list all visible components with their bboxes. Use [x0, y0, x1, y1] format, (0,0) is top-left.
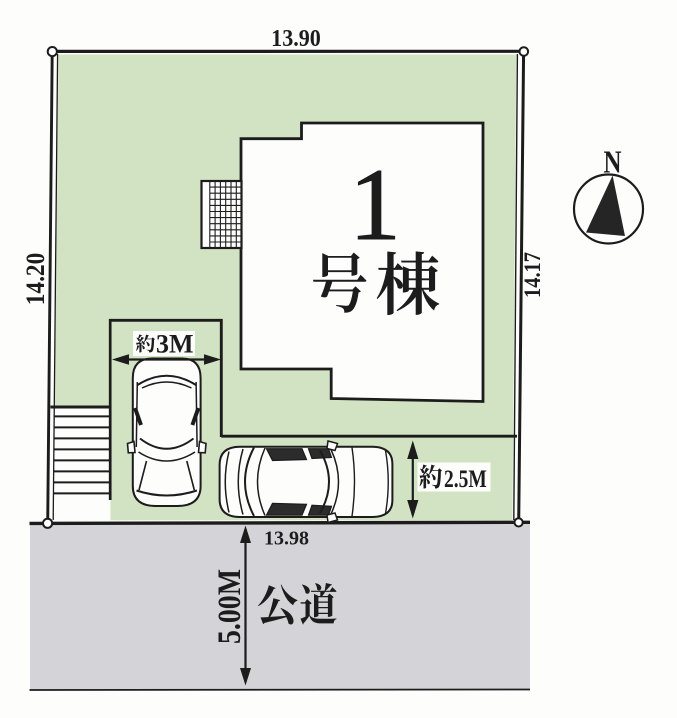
svg-text:14.20: 14.20 — [22, 253, 50, 306]
svg-text:3M: 3M — [156, 330, 194, 359]
svg-text:1: 1 — [349, 148, 401, 262]
svg-text:N: N — [603, 145, 621, 181]
svg-text:14.17: 14.17 — [520, 252, 545, 298]
svg-text:2.5M: 2.5M — [444, 465, 487, 493]
svg-text:5.00M: 5.00M — [211, 569, 248, 644]
svg-text:13.90: 13.90 — [271, 24, 321, 51]
svg-text:13.98: 13.98 — [264, 528, 309, 550]
